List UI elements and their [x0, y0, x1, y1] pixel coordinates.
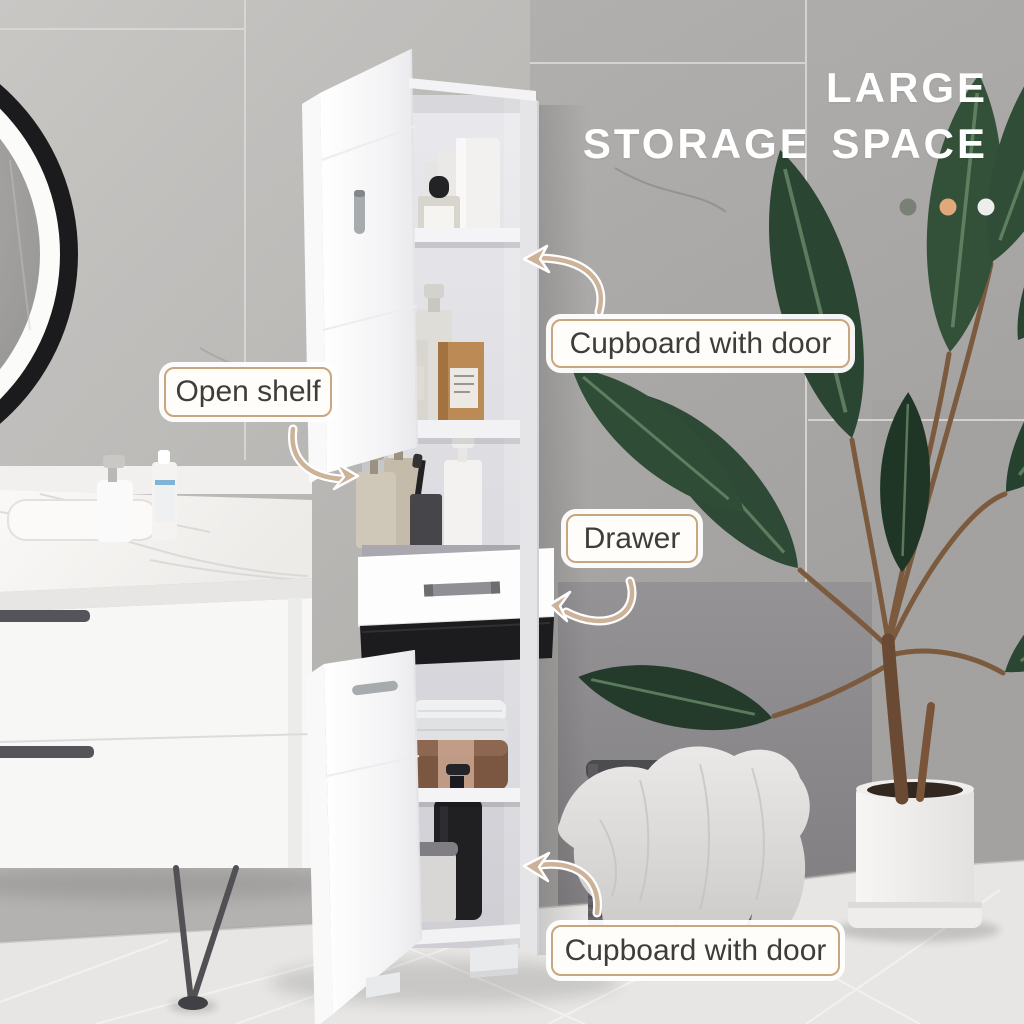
cabinet-side-panel — [520, 92, 538, 956]
callout-cupboard-with-door-bottom: Cupboard with door — [551, 925, 840, 976]
callout-label: Open shelf — [175, 375, 320, 409]
headline-line-2: STORAGE SPACE — [583, 116, 988, 172]
vanity-drawer-handle — [0, 746, 94, 758]
soil — [867, 782, 963, 798]
sink-basin — [8, 500, 158, 540]
vanity-drawer-handle — [0, 610, 90, 622]
tumbler-cup — [410, 494, 442, 548]
callout-open-shelf: Open shelf — [164, 367, 332, 417]
callout-cupboard-with-door-top: Cupboard with door — [551, 319, 850, 368]
vanity-body — [0, 598, 312, 868]
callout-label: Drawer — [584, 522, 681, 556]
color-dot-tan — [940, 199, 957, 216]
color-dot-white — [978, 199, 995, 216]
plant-pot — [856, 788, 974, 908]
headline-line-1: LARGE — [583, 60, 988, 116]
callout-label: Cupboard with door — [565, 934, 827, 968]
product-image: LARGE STORAGE SPACE Cupboard with door O… — [0, 0, 1024, 1024]
color-option-dots — [900, 199, 995, 216]
top-cupboard-door — [302, 49, 417, 484]
color-dot-gray — [900, 199, 917, 216]
headline: LARGE STORAGE SPACE — [583, 60, 988, 172]
callout-drawer: Drawer — [566, 514, 698, 563]
callout-label: Cupboard with door — [570, 327, 832, 361]
